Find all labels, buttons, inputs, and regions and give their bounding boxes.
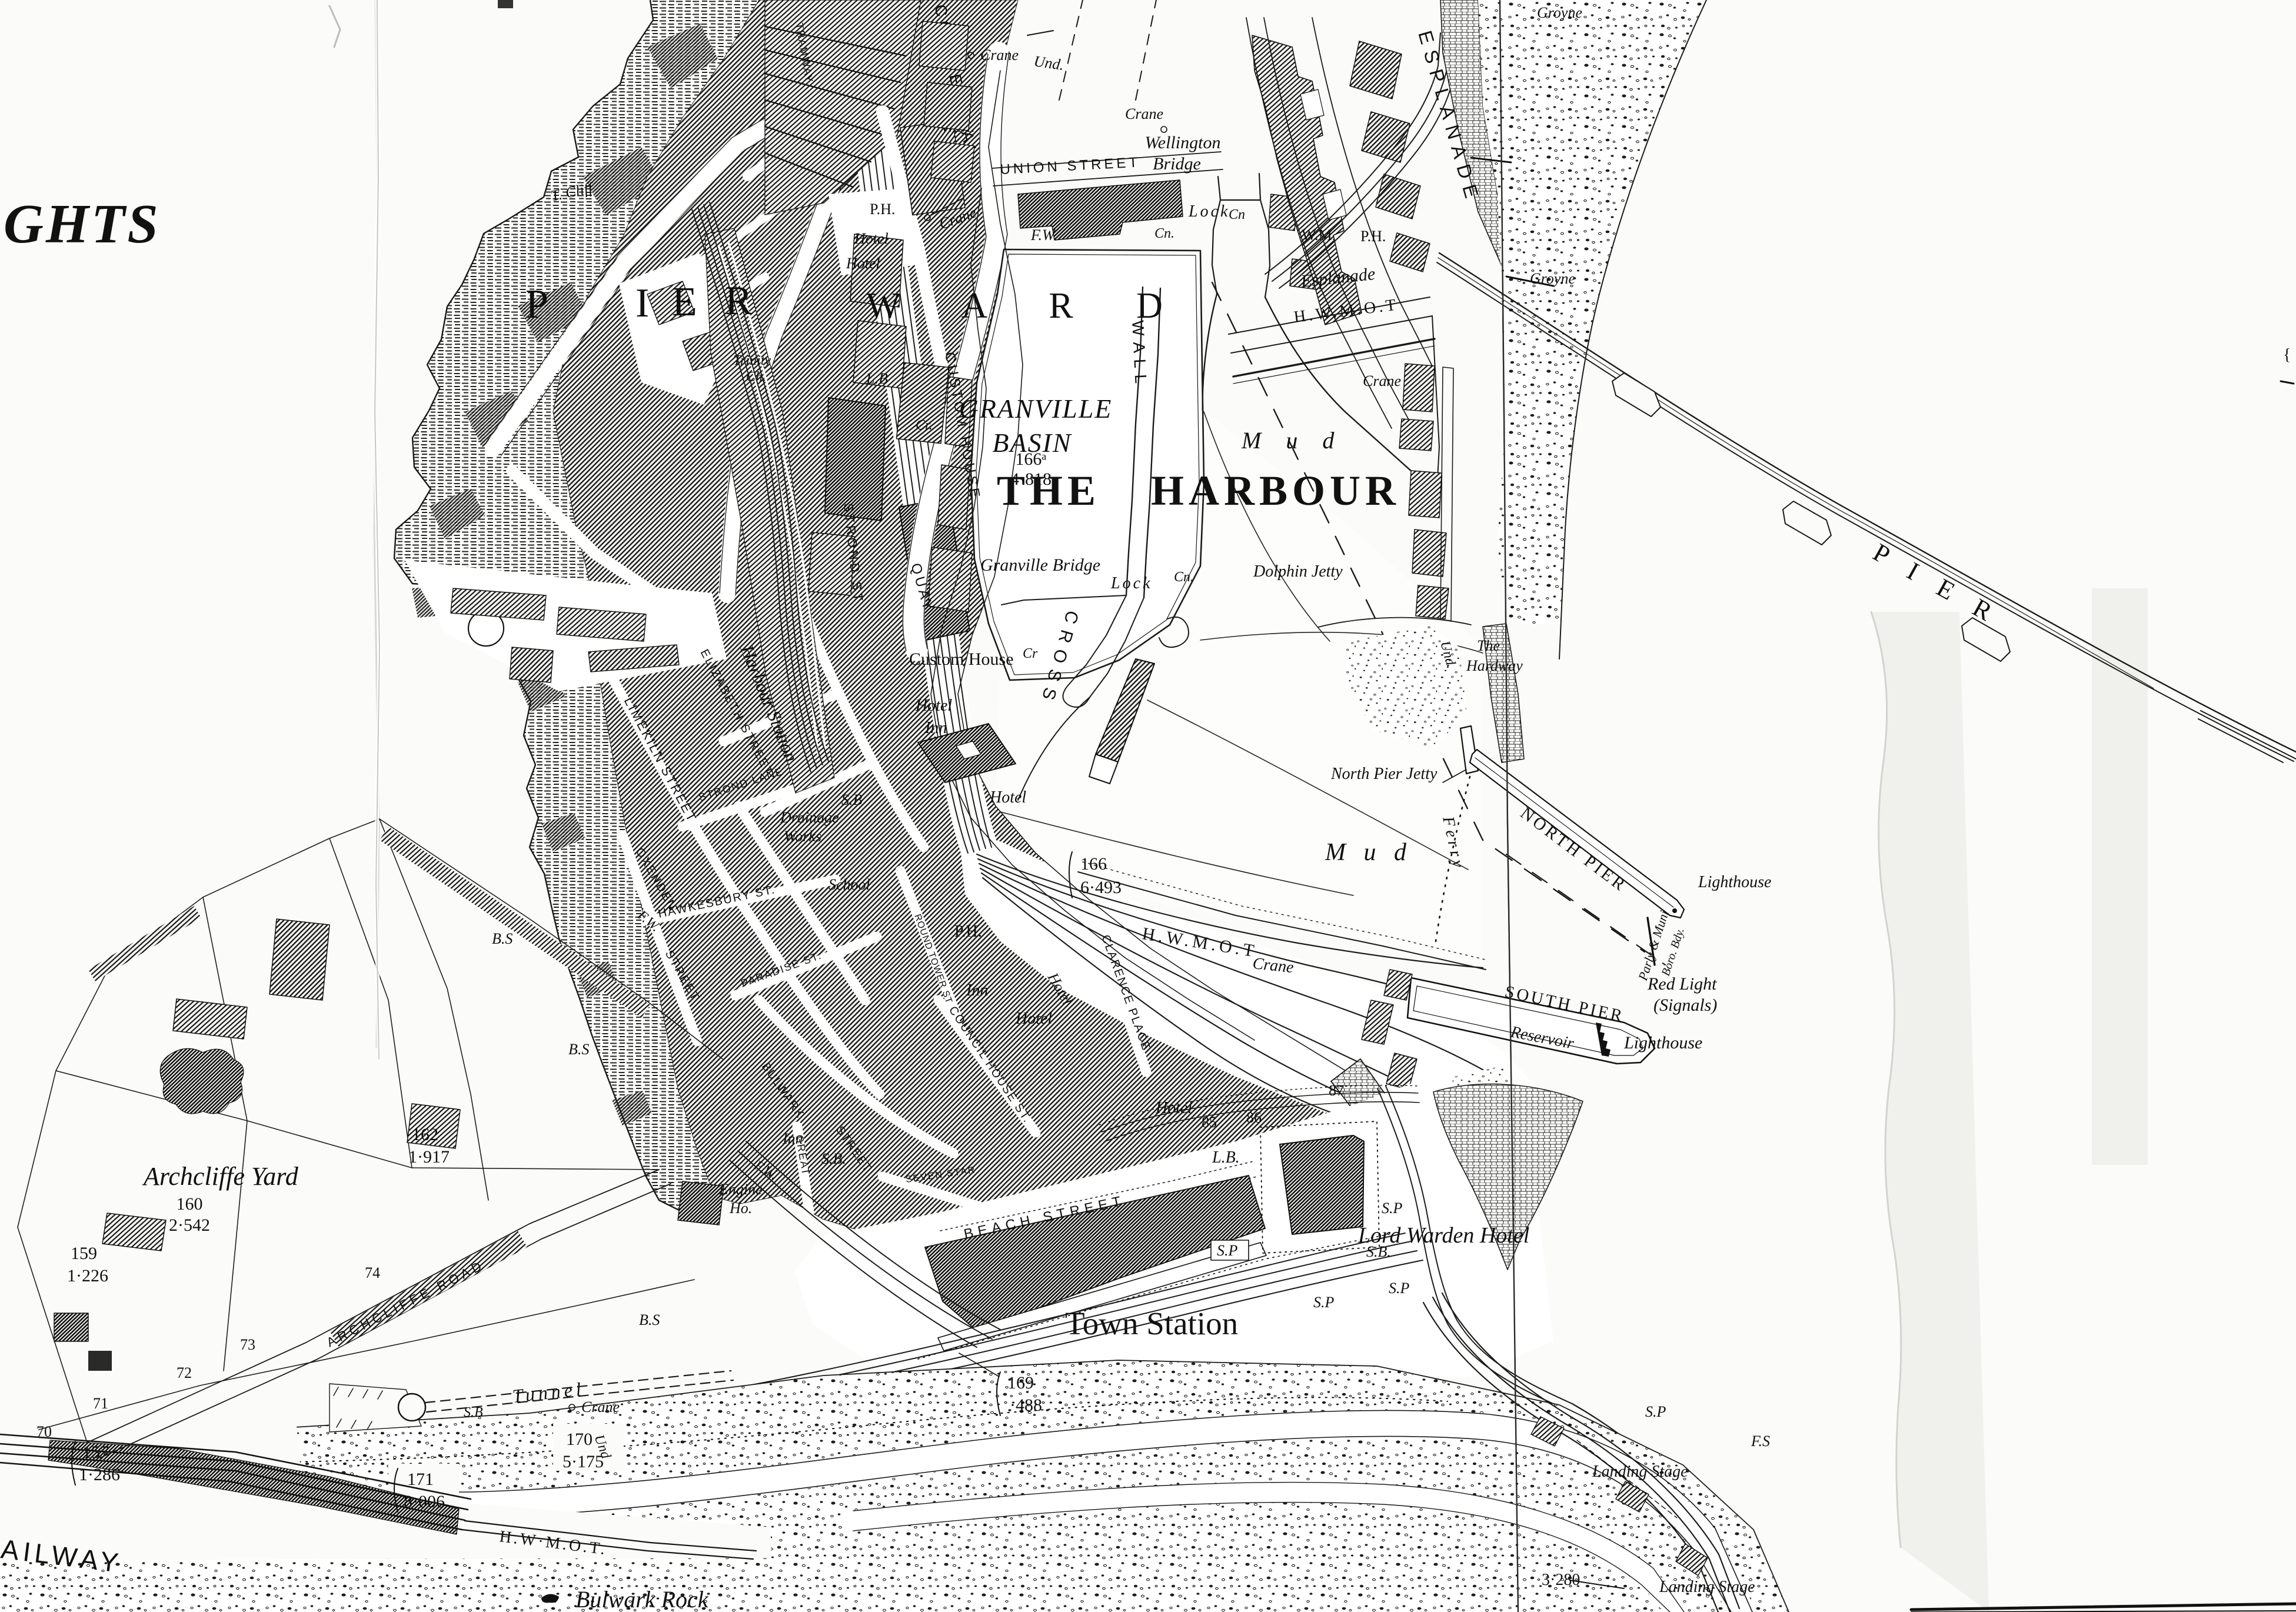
- svg-text:159: 159: [71, 1244, 97, 1263]
- svg-text:I: I: [635, 281, 649, 326]
- svg-text:Inn: Inn: [966, 981, 988, 1000]
- svg-text:Drainage: Drainage: [780, 809, 839, 826]
- svg-text:85: 85: [1202, 1114, 1217, 1131]
- svg-text:S.B.: S.B.: [1366, 1243, 1391, 1260]
- svg-text:W.M.: W.M.: [1302, 227, 1336, 244]
- svg-text:3·280: 3·280: [1542, 1571, 1580, 1589]
- svg-text:S.P: S.P: [1389, 1280, 1410, 1297]
- svg-text:{: {: [2283, 346, 2291, 364]
- svg-text:L.B: L.B: [866, 370, 888, 387]
- svg-text:2·542: 2·542: [169, 1215, 210, 1235]
- svg-text:Hardway: Hardway: [1466, 657, 1523, 674]
- svg-text:8·006: 8·006: [404, 1492, 445, 1511]
- svg-text:Groyne: Groyne: [1530, 270, 1575, 287]
- svg-text:Inn: Inn: [924, 719, 947, 737]
- svg-text:School: School: [828, 876, 870, 893]
- svg-text:Crane: Crane: [581, 1398, 620, 1416]
- svg-text:Hotel: Hotel: [846, 255, 880, 272]
- svg-text:Ch.: Ch.: [746, 369, 766, 385]
- svg-text:THE: THE: [997, 467, 1100, 514]
- svg-text:74: 74: [365, 1264, 380, 1281]
- svg-text:S.P: S.P: [1313, 1294, 1335, 1311]
- svg-text:F.W.: F.W.: [1030, 227, 1057, 244]
- svg-text:·488: ·488: [1010, 1395, 1042, 1415]
- svg-text:Bridge: Bridge: [1153, 154, 1201, 174]
- svg-text:Lighthouse: Lighthouse: [1623, 1033, 1702, 1053]
- svg-text:P.H.: P.H.: [870, 201, 895, 218]
- svg-text:169: 169: [1007, 1373, 1034, 1393]
- svg-text:Cr: Cr: [1023, 646, 1038, 661]
- svg-text:S.B: S.B: [464, 1405, 483, 1420]
- svg-text:P: P: [525, 282, 548, 327]
- svg-text:87: 87: [1329, 1082, 1344, 1099]
- svg-text:(Signals): (Signals): [1653, 995, 1717, 1015]
- svg-text:North Pier Jetty: North Pier Jetty: [1330, 765, 1438, 783]
- svg-text:Hotel: Hotel: [854, 230, 889, 247]
- svg-text:Landing Stage: Landing Stage: [1592, 1463, 1688, 1481]
- svg-text:E: E: [672, 279, 697, 325]
- svg-text:HARBOUR: HARBOUR: [1151, 467, 1400, 514]
- svg-text:Town Station: Town Station: [1065, 1305, 1238, 1341]
- svg-text:86: 86: [1246, 1109, 1262, 1126]
- svg-text:R: R: [725, 278, 753, 324]
- svg-text:Lock: Lock: [1188, 202, 1230, 221]
- svg-text:72: 72: [177, 1364, 192, 1381]
- svg-text:Engine: Engine: [718, 1181, 763, 1198]
- svg-text:157: 157: [82, 1443, 109, 1462]
- svg-text:Works: Works: [784, 828, 821, 845]
- svg-text:Granville Bridge: Granville Bridge: [980, 555, 1100, 575]
- svg-text:Lighthouse: Lighthouse: [1698, 873, 1771, 891]
- svg-text:Hotel: Hotel: [1015, 1010, 1052, 1028]
- svg-text:Bulwark Rock: Bulwark Rock: [575, 1586, 709, 1612]
- svg-text:6·493: 6·493: [1080, 878, 1122, 897]
- svg-text:S.B: S.B: [841, 791, 863, 808]
- svg-text:Groyne: Groyne: [1537, 4, 1582, 21]
- svg-text:166ᵃ: 166ᵃ: [1015, 449, 1046, 469]
- svg-text:1·286: 1·286: [79, 1465, 120, 1484]
- svg-text:B.S: B.S: [639, 1311, 660, 1328]
- svg-text:GHTS: GHTS: [4, 194, 161, 255]
- svg-text:Custom House: Custom House: [909, 650, 1014, 669]
- svg-text:Archcliffe Yard: Archcliffe Yard: [142, 1162, 299, 1191]
- svg-text:F.S: F.S: [1751, 1433, 1770, 1450]
- svg-text:Lock: Lock: [1110, 574, 1152, 592]
- svg-text:Crane: Crane: [1363, 372, 1401, 389]
- svg-text:Cr.: Cr.: [916, 418, 933, 433]
- svg-text:Dolphin Jetty: Dolphin Jetty: [1253, 562, 1343, 581]
- svg-text:S.B.: S.B.: [821, 1150, 846, 1167]
- svg-text:Red Light: Red Light: [1647, 974, 1717, 994]
- svg-text:73: 73: [240, 1336, 255, 1353]
- svg-text:166: 166: [1080, 854, 1107, 874]
- svg-text:Crane: Crane: [980, 46, 1019, 64]
- svg-text:The: The: [1477, 637, 1500, 654]
- svg-text:Trinity: Trinity: [733, 353, 771, 368]
- svg-text:1·226: 1·226: [67, 1266, 108, 1285]
- svg-text:Hotel: Hotel: [989, 788, 1026, 807]
- svg-text:Hotel: Hotel: [915, 697, 952, 715]
- svg-text:Wellington: Wellington: [1145, 133, 1221, 152]
- svg-text:Hotel: Hotel: [1155, 1099, 1192, 1117]
- svg-text:P.H.: P.H.: [954, 922, 982, 941]
- svg-text:S.P: S.P: [1217, 1242, 1238, 1259]
- svg-text:Crane: Crane: [1125, 105, 1163, 122]
- svg-text:B.S: B.S: [568, 1041, 589, 1058]
- svg-text:Cn.: Cn.: [1154, 226, 1174, 241]
- svg-text:Ho.: Ho.: [729, 1200, 752, 1217]
- svg-text:GRANVILLE: GRANVILLE: [959, 394, 1113, 424]
- svg-text:P.H.: P.H.: [1360, 228, 1386, 245]
- svg-text:Landing Stage: Landing Stage: [1659, 1578, 1755, 1596]
- svg-text:Cn.: Cn.: [1174, 569, 1194, 585]
- svg-text:W A L L: W A L L: [1129, 320, 1150, 385]
- svg-text:B.S: B.S: [492, 930, 513, 947]
- svg-text:S.P: S.P: [1645, 1403, 1666, 1420]
- svg-text:171: 171: [407, 1470, 434, 1489]
- svg-text:Inn: Inn: [782, 1130, 803, 1147]
- svg-text:170: 170: [566, 1430, 593, 1449]
- svg-text:160: 160: [177, 1194, 203, 1214]
- svg-text:M u d: M u d: [1325, 839, 1412, 866]
- svg-text:1·917: 1·917: [408, 1147, 450, 1167]
- svg-text:S.P: S.P: [1382, 1200, 1403, 1217]
- svg-text:71: 71: [93, 1395, 108, 1412]
- svg-text:70: 70: [36, 1423, 52, 1440]
- svg-text:Cn: Cn: [1229, 207, 1245, 222]
- svg-text:L.B.: L.B.: [1212, 1148, 1240, 1167]
- svg-text:M u d: M u d: [1241, 427, 1343, 454]
- svg-text:162: 162: [412, 1125, 438, 1144]
